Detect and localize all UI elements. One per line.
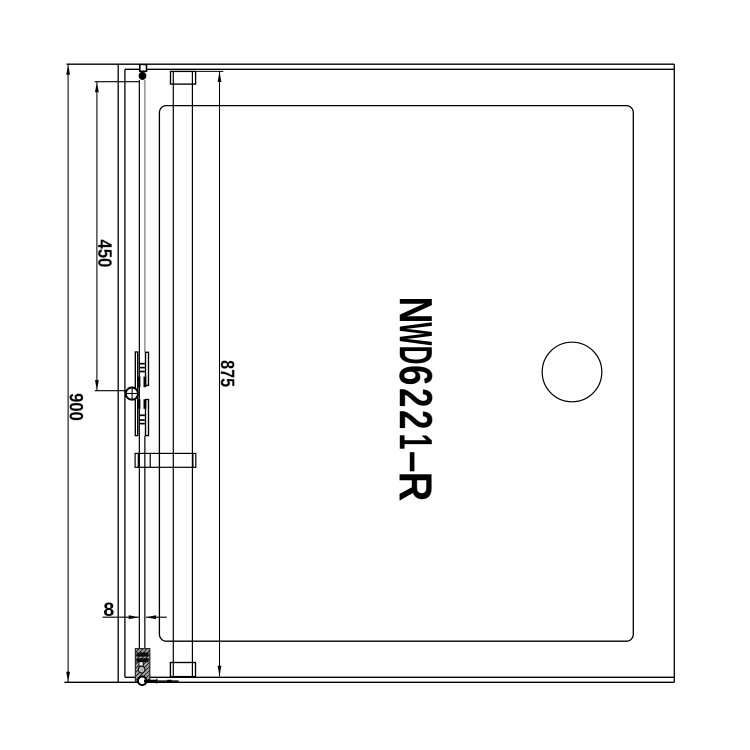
svg-text:875: 875 <box>216 360 238 387</box>
svg-text:6: 6 <box>390 365 442 386</box>
svg-text:8: 8 <box>103 599 114 621</box>
svg-text:D: D <box>390 346 442 365</box>
svg-text:900: 900 <box>65 393 87 421</box>
svg-text:W: W <box>390 322 442 346</box>
svg-text:2: 2 <box>390 410 442 430</box>
svg-text:450: 450 <box>93 239 115 267</box>
svg-text:–: – <box>390 451 442 473</box>
svg-text:N: N <box>390 297 442 324</box>
svg-text:1: 1 <box>390 434 442 450</box>
svg-text:R: R <box>390 472 442 502</box>
svg-text:2: 2 <box>390 388 442 408</box>
